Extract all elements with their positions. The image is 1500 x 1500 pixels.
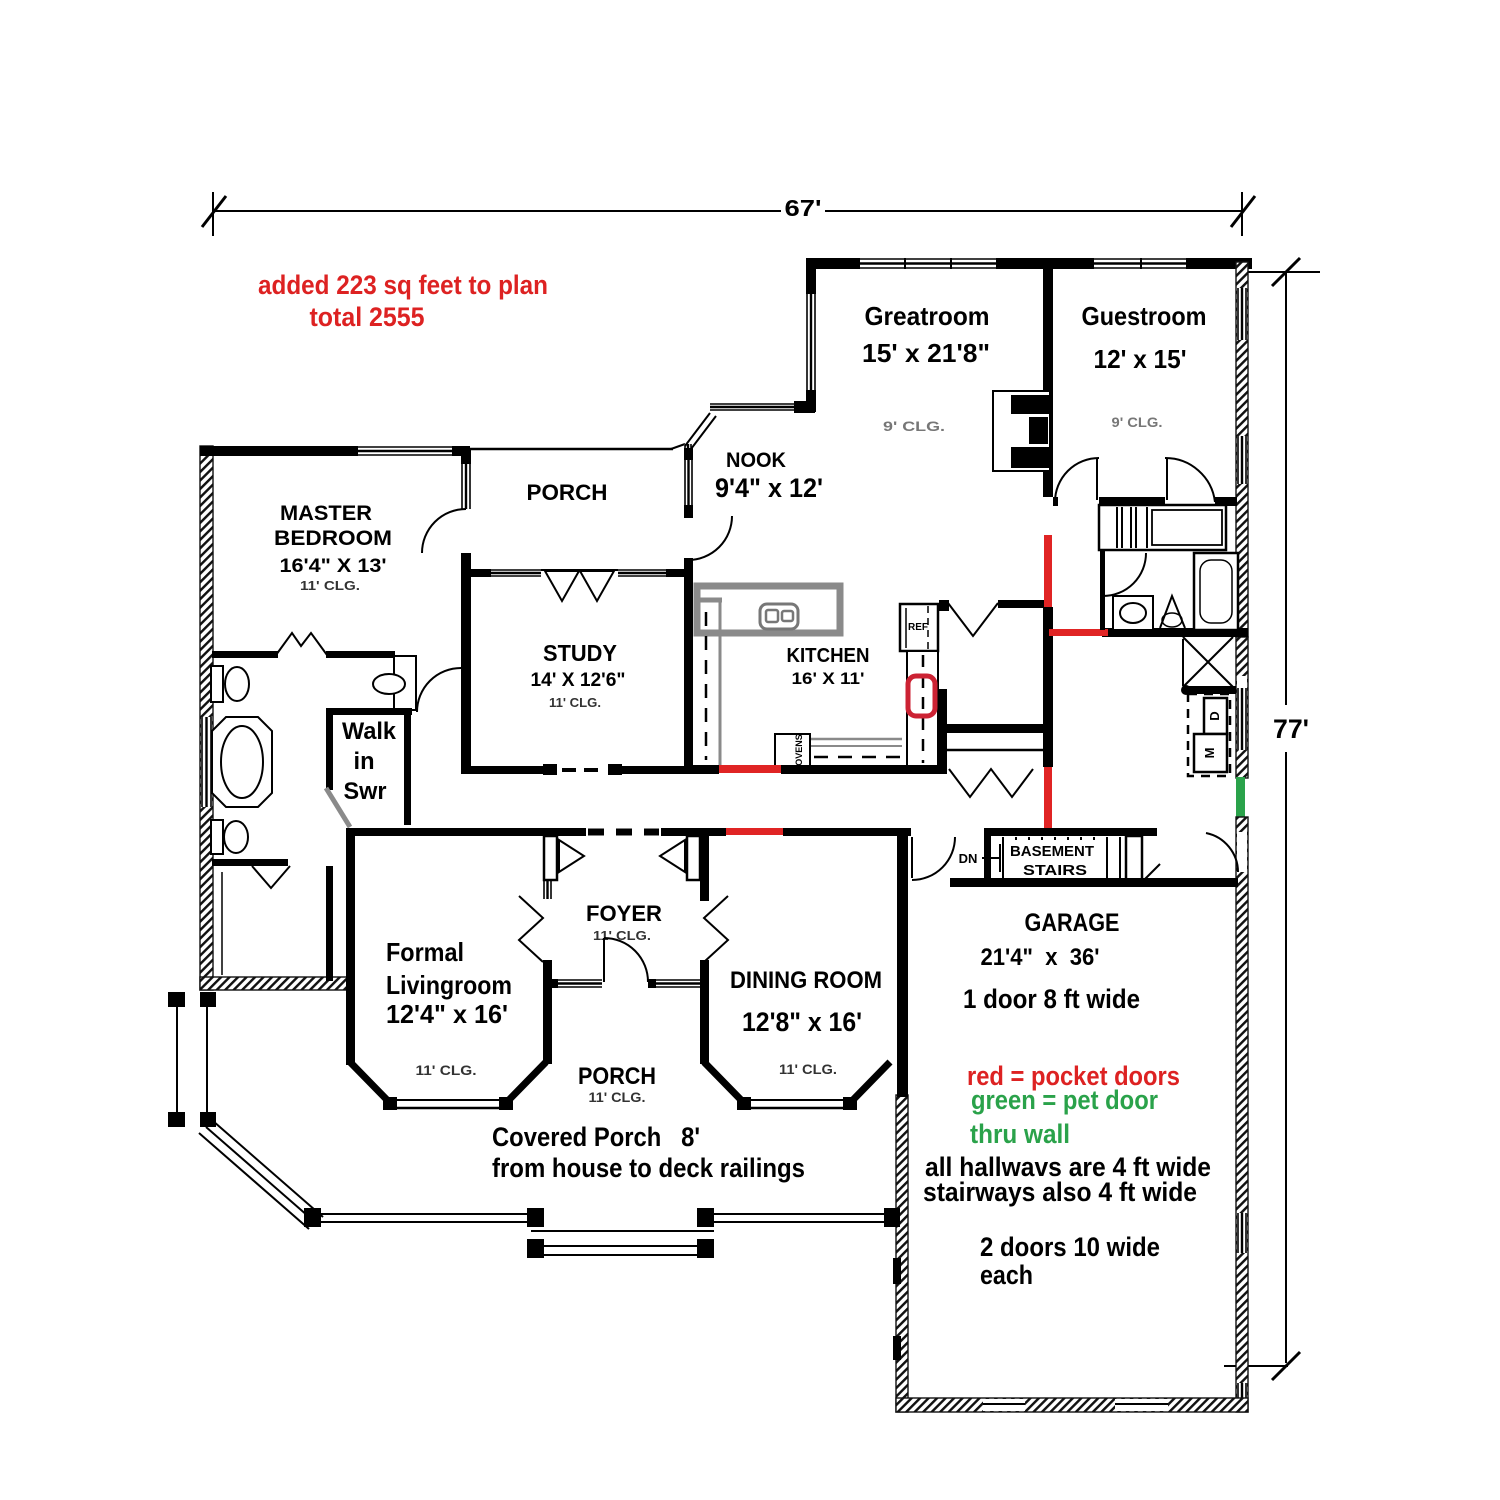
svg-text:FOYER: FOYER [586,901,662,926]
svg-text:Guestroom: Guestroom [1082,301,1207,331]
svg-text:16' X 11': 16' X 11' [792,669,865,688]
svg-text:21'4" x 36': 21'4" x 36' [981,944,1100,971]
svg-text:12'4" x 16': 12'4" x 16' [386,999,508,1029]
svg-text:9' CLG.: 9' CLG. [883,418,945,434]
svg-text:Formal: Formal [386,937,464,967]
svg-text:total 2555: total 2555 [310,302,425,332]
svg-text:MASTER: MASTER [280,502,372,525]
svg-text:stairways also 4 ft wide: stairways also 4 ft wide [923,1177,1197,1207]
svg-text:thru wall: thru wall [970,1119,1070,1149]
svg-text:Covered Porch 8': Covered Porch 8' [492,1122,700,1152]
svg-text:added 223 sq feet to plan: added 223 sq feet to plan [258,270,548,300]
svg-text:STUDY: STUDY [543,640,617,666]
svg-text:PORCH: PORCH [578,1063,656,1090]
svg-text:REF: REF [908,622,928,633]
svg-text:DINING ROOM: DINING ROOM [730,967,882,994]
svg-text:9'4" x 12': 9'4" x 12' [715,473,823,503]
svg-text:16'4" X 13': 16'4" X 13' [280,556,387,577]
svg-text:D: D [1207,711,1222,720]
svg-text:Livingroom: Livingroom [386,970,512,1000]
svg-text:each: each [980,1260,1033,1290]
svg-text:11' CLG.: 11' CLG. [589,1089,646,1105]
svg-text:11' CLG.: 11' CLG. [779,1061,837,1077]
svg-text:from house to deck railings: from house to deck railings [492,1153,805,1183]
svg-text:GARAGE: GARAGE [1025,909,1120,937]
svg-text:STAIRS: STAIRS [1023,862,1087,879]
svg-text:11' CLG.: 11' CLG. [549,695,601,710]
svg-text:12'8" x 16': 12'8" x 16' [742,1007,862,1037]
svg-text:NOOK: NOOK [726,449,786,472]
svg-text:PORCH: PORCH [527,480,608,505]
svg-text:12' x 15': 12' x 15' [1094,344,1187,374]
svg-text:Walk: Walk [342,718,397,745]
svg-text:15' x 21'8": 15' x 21'8" [862,338,990,368]
svg-text:DN: DN [959,851,978,866]
svg-text:14' X 12'6": 14' X 12'6" [531,670,626,691]
svg-text:Swr: Swr [344,778,387,805]
svg-text:Greatroom: Greatroom [865,301,990,331]
svg-text:green = pet door: green = pet door [971,1085,1158,1115]
svg-text:9' CLG.: 9' CLG. [1112,414,1163,430]
svg-text:77': 77' [1273,714,1309,744]
svg-text:11' CLG.: 11' CLG. [416,1062,477,1078]
svg-text:11' CLG.: 11' CLG. [300,578,360,593]
svg-text:M: M [1202,748,1217,759]
svg-text:BASEMENT: BASEMENT [1010,843,1094,860]
svg-text:in: in [354,748,375,775]
svg-text:OVENS: OVENS [794,734,804,766]
svg-text:KITCHEN: KITCHEN [787,645,870,667]
svg-text:2 doors 10 wide: 2 doors 10 wide [980,1232,1160,1262]
svg-text:67': 67' [785,195,822,221]
svg-text:BEDROOM: BEDROOM [274,527,392,550]
svg-text:1 door 8 ft wide: 1 door 8 ft wide [963,984,1140,1014]
